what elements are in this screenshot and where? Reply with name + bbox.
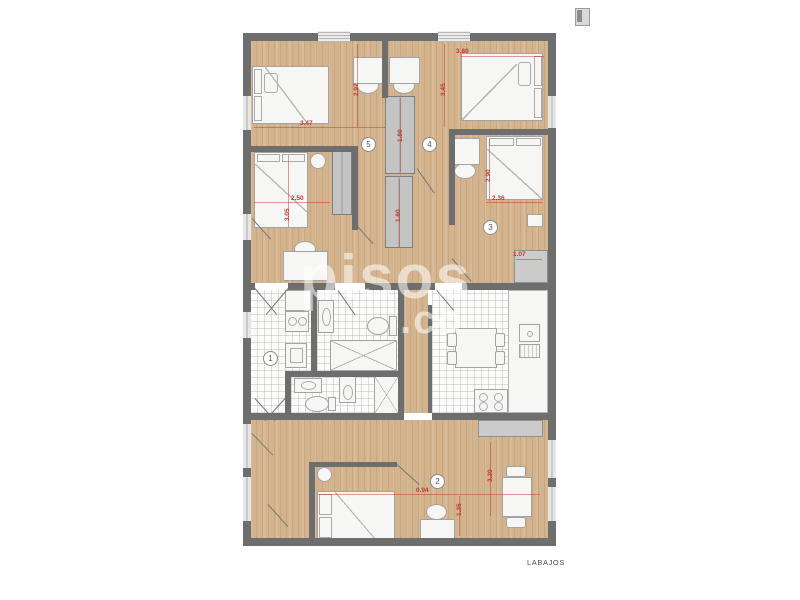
bed (317, 491, 395, 540)
dimension-label: 2.36 (492, 195, 505, 202)
room-number-badge: 4 (422, 137, 437, 152)
basin-icon (288, 317, 297, 326)
basin-icon (298, 317, 307, 326)
duvet-fold (487, 149, 542, 199)
dimension-line (461, 56, 544, 57)
dimension-line (318, 494, 540, 495)
room-number-badge: 5 (361, 137, 376, 152)
pillow (518, 62, 531, 86)
desk (389, 57, 420, 84)
burner (494, 393, 503, 402)
toilet-icon (305, 396, 329, 412)
wall-leftbedroom-right (352, 146, 358, 230)
watermark-text-secondary: .co (400, 298, 464, 343)
room-number-badge: 1 (263, 351, 278, 366)
laundry-sink (285, 311, 309, 332)
chair (447, 351, 457, 365)
window-right-2 (548, 440, 556, 478)
bed (461, 53, 543, 121)
balcony-strip (478, 420, 543, 437)
dimension-label: 3.47 (300, 120, 313, 127)
window-top-2 (438, 31, 470, 42)
chair (495, 351, 505, 365)
duvet-fold (335, 492, 375, 539)
burner (479, 402, 488, 411)
drain-dot (527, 331, 533, 337)
bidet-bowl (343, 385, 353, 400)
wall-room5-bottom (250, 146, 358, 152)
bidet-icon (339, 376, 356, 403)
round-side-table (317, 467, 332, 482)
wall-desk-divider (382, 40, 388, 98)
room-number-badge: 2 (430, 474, 445, 489)
floorplan-canvas: 3.47 2.97 3.80 3.45 2.50 3.05 2.36 2.90 … (0, 0, 800, 600)
stove-icon (474, 389, 508, 413)
wall-bottom (243, 538, 556, 546)
plan-footer-label: LABAJOS (527, 558, 565, 567)
toilet-tank (389, 316, 397, 336)
basin-icon (301, 381, 316, 390)
bed (486, 136, 543, 200)
wall-nook-horizontal (309, 462, 397, 467)
window-left-2 (243, 214, 251, 240)
wall-hall-bath2 (285, 371, 291, 419)
wall-bath1-bath2 (285, 371, 400, 377)
dimension-label: 1.80 (397, 129, 404, 142)
wall-midblock-bottom-b (432, 413, 548, 420)
burner (479, 393, 488, 402)
round-side-table (310, 153, 326, 169)
burner (494, 402, 503, 411)
duvet-fold (255, 164, 307, 212)
window-left-4 (243, 424, 251, 468)
wall-nook-vertical (309, 462, 315, 539)
chair (506, 517, 526, 528)
dimension-label: 3.45 (440, 83, 447, 96)
wall-mid-a (250, 283, 255, 290)
kitchen-sink-icon (519, 324, 540, 342)
dimension-label: 2.97 (353, 83, 360, 96)
window-left-5 (243, 477, 251, 521)
dimension-line (486, 202, 543, 203)
dimension-label: 0.94 (416, 487, 429, 494)
dimension-line (254, 202, 330, 203)
toilet-tank (328, 397, 336, 411)
dimension-line (459, 496, 460, 536)
shower-tray-icon (330, 340, 397, 371)
wall-midblock-bottom-a (250, 413, 404, 420)
toilet-icon (367, 317, 389, 335)
chair (495, 333, 505, 347)
desk-chair (454, 163, 476, 179)
dimension-label: 3.05 (284, 208, 291, 221)
headboard-cell (319, 494, 332, 515)
dimension-label: 3.20 (487, 469, 494, 482)
headboard-cell (319, 517, 332, 538)
dimension-label: 1.60 (395, 209, 402, 222)
bedside-table (527, 214, 543, 227)
wardrobe-left-bedroom (332, 148, 352, 215)
dimension-label: 1.07 (513, 251, 526, 258)
washer-door (290, 348, 303, 363)
headboard-cell (282, 154, 305, 162)
headboard-cell (489, 138, 514, 146)
dimension-line (516, 259, 542, 260)
shower-tray-icon (374, 376, 399, 414)
headboard-cell (534, 88, 542, 118)
desk-chair (426, 504, 447, 520)
headboard-cell (516, 138, 541, 146)
sink-icon (294, 378, 322, 393)
wall-top (243, 33, 556, 41)
tile-floor-hall-lower (250, 371, 285, 413)
headboard-cell (534, 56, 542, 86)
window-top-1 (318, 31, 350, 42)
bed (252, 66, 329, 124)
headboard-cell (254, 69, 262, 94)
window-left-1 (243, 96, 251, 130)
duvet-fold (462, 64, 517, 120)
duvet-fold (265, 67, 307, 123)
headboard-cell (254, 96, 262, 121)
dimension-label: 2.90 (485, 169, 492, 182)
chair (506, 466, 526, 477)
wall-mid-d (462, 283, 549, 290)
wall-room3-left (449, 129, 455, 225)
desk (451, 138, 480, 165)
dining-table (502, 477, 532, 517)
thumbnail-icon-fill (577, 10, 582, 22)
dimension-line (254, 127, 385, 128)
dimension-label: 3.80 (456, 48, 469, 55)
bed (254, 152, 308, 228)
dimension-label: 2.50 (291, 195, 304, 202)
thumbnail-icon (575, 8, 590, 26)
headboard-cell (257, 154, 280, 162)
room-number-badge: 3 (483, 220, 498, 235)
washer-icon (285, 343, 307, 368)
window-left-3 (243, 312, 251, 338)
window-right-3 (548, 487, 556, 521)
kitchen-drainer (519, 344, 540, 358)
window-right-1 (548, 96, 556, 128)
wall-room4-room3 (449, 129, 549, 135)
dimension-label: 1.35 (456, 503, 463, 516)
